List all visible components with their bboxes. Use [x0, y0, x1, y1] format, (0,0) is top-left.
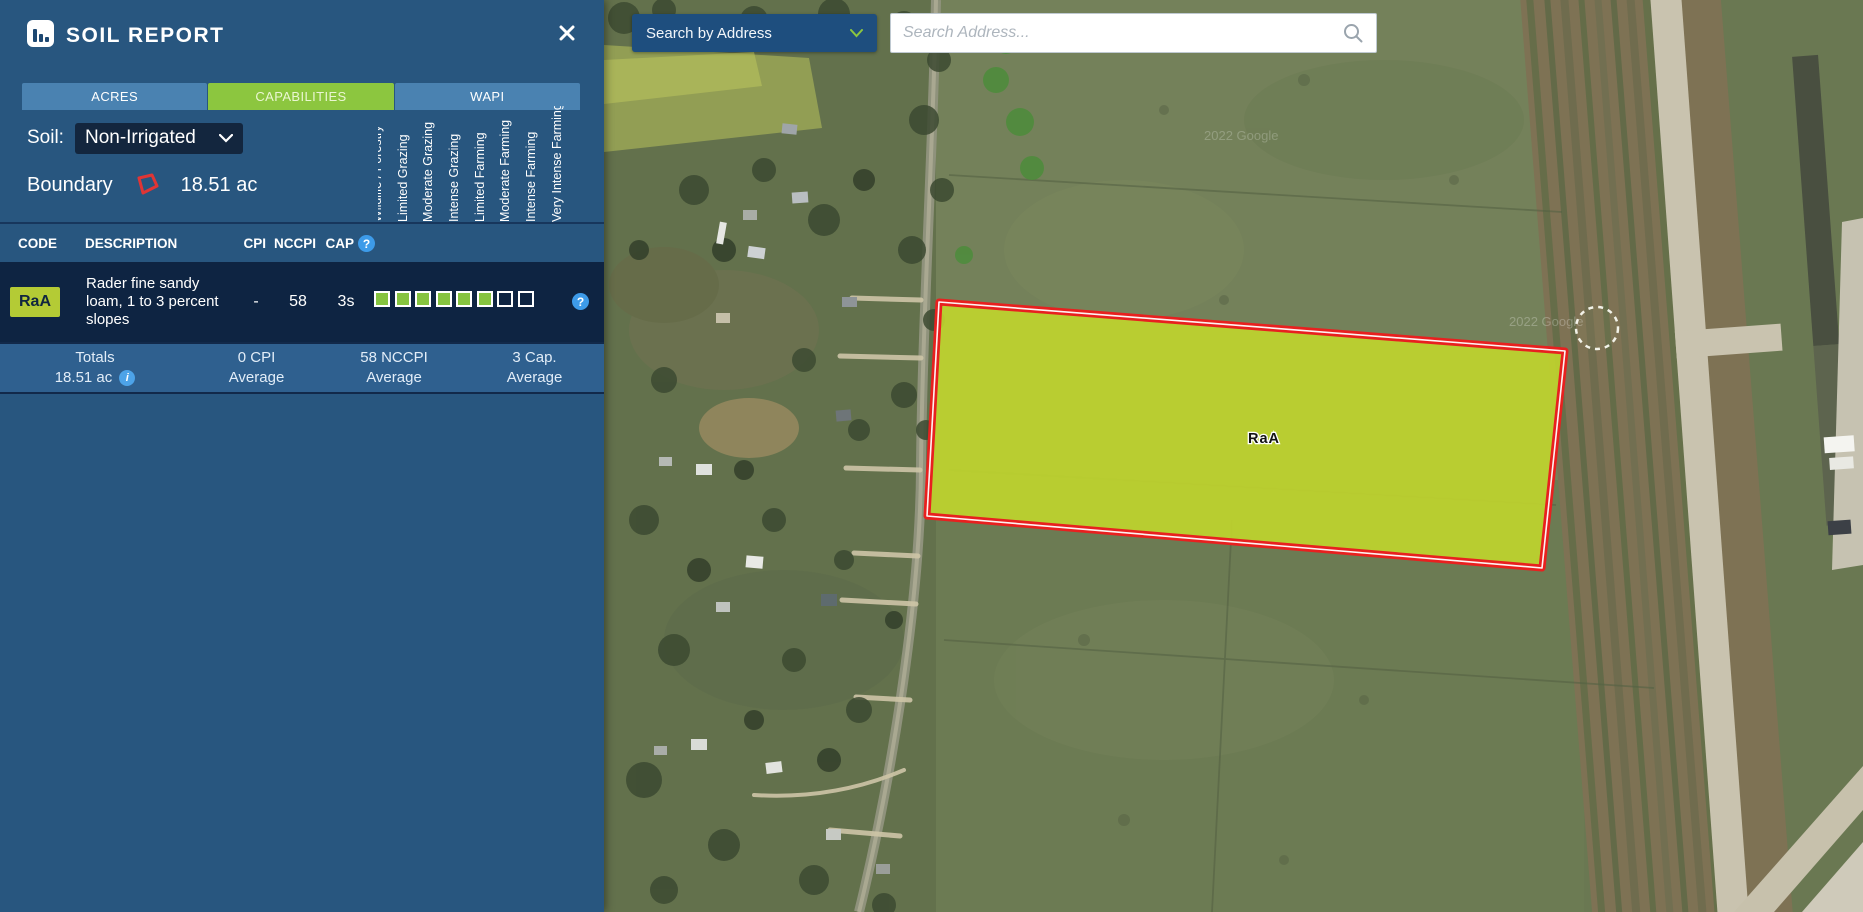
chevron-down-icon — [219, 134, 233, 143]
totals-nccpi-cell: 58 NCCPI Average — [323, 348, 465, 388]
chevron-down-icon — [850, 29, 863, 38]
capability-column-label: Very Intense Farming — [550, 106, 564, 222]
search-type-select[interactable]: Search by Address — [632, 14, 877, 52]
dirt-patch — [699, 398, 799, 458]
soil-type-select[interactable]: Non-Irrigated — [75, 123, 243, 154]
soil-report-app: SOIL REPORT ACRES CAPABILITIES WAPI Soil… — [0, 0, 1863, 912]
capability-filled-square — [395, 291, 411, 307]
search-icon[interactable] — [1342, 22, 1364, 44]
capability-empty-square — [518, 291, 534, 307]
info-icon[interactable]: i — [119, 370, 135, 386]
nccpi-value: 58 — [278, 293, 318, 311]
map-search-bar: Search by Address — [604, 0, 1863, 60]
panel-title: SOIL REPORT — [66, 24, 224, 48]
tab-capabilities[interactable]: CAPABILITIES — [208, 83, 393, 110]
soil-description: Rader fine sandy loam, 1 to 3 percent sl… — [86, 275, 232, 329]
totals-cap-sub: Average — [465, 368, 604, 388]
totals-label: Totals — [0, 348, 190, 368]
capability-filled-square — [477, 291, 493, 307]
cap-value: 3s — [326, 293, 366, 311]
totals-cpi-sub: Average — [190, 368, 323, 388]
capability-filled-square — [436, 291, 452, 307]
boundary-label: Boundary — [27, 174, 113, 197]
soil-type-selected: Non-Irrigated — [85, 127, 219, 149]
header-description: DESCRIPTION — [85, 236, 177, 251]
capability-column-label: Moderate Farming — [498, 120, 512, 222]
search-type-label: Search by Address — [646, 25, 850, 42]
capability-column-headers: Wildlife / Forestry Limited Grazing Mode… — [378, 106, 594, 222]
watermark-text: 2022 Google — [1509, 314, 1583, 329]
soil-report-panel: SOIL REPORT ACRES CAPABILITIES WAPI Soil… — [0, 0, 604, 912]
parcel-code-label: RaA — [1248, 431, 1280, 447]
soil-code-badge: RaA — [10, 287, 60, 317]
watermark-text: 2022 Google — [1204, 128, 1278, 143]
address-search-input[interactable] — [903, 24, 1342, 42]
boundary-acres: 18.51 ac — [181, 174, 258, 197]
row-help-icon[interactable]: ? — [572, 293, 589, 310]
totals-acres-cell: Totals 18.51 ac i — [0, 348, 190, 388]
bar-chart-icon — [27, 20, 54, 47]
header-code: CODE — [18, 236, 57, 251]
capability-column-label: Intense Farming — [524, 132, 538, 222]
totals-bar: Totals 18.51 ac i 0 CPI Average 58 NCCPI… — [0, 342, 604, 394]
cpi-value: - — [236, 293, 276, 311]
capability-column-label: Limited Grazing — [396, 134, 410, 222]
capability-column-label: Limited Farming — [473, 132, 487, 222]
soil-table-header: CODE DESCRIPTION CPI NCCPI CAP ? — [0, 222, 604, 262]
totals-nccpi-sub: Average — [323, 368, 465, 388]
header-nccpi: NCCPI — [270, 236, 316, 251]
cap-help-icon[interactable]: ? — [358, 235, 375, 252]
capability-empty-square — [497, 291, 513, 307]
tab-acres[interactable]: ACRES — [22, 83, 207, 110]
header-cpi: CPI — [228, 236, 266, 251]
totals-cap: 3 Cap. — [465, 348, 604, 368]
capability-filled-square — [456, 291, 472, 307]
totals-cpi-cell: 0 CPI Average — [190, 348, 323, 388]
close-icon[interactable] — [552, 18, 582, 48]
soil-label: Soil: — [27, 127, 64, 149]
capability-squares — [374, 291, 534, 307]
address-search-box — [890, 13, 1377, 53]
table-row[interactable]: RaA Rader fine sandy loam, 1 to 3 percen… — [0, 262, 604, 342]
totals-cap-cell: 3 Cap. Average — [465, 348, 604, 388]
satellite-imagery[interactable]: 2022 Google 2022 Google RaA — [604, 0, 1863, 912]
totals-acres: 18.51 ac — [55, 368, 113, 388]
capability-filled-square — [374, 291, 390, 307]
capability-column-label: Intense Grazing — [447, 134, 461, 222]
totals-cpi: 0 CPI — [190, 348, 323, 368]
totals-nccpi: 58 NCCPI — [323, 348, 465, 368]
capability-column-label: Moderate Grazing — [421, 122, 435, 222]
header-cap: CAP — [322, 236, 354, 251]
boundary-polygon-icon — [135, 173, 161, 197]
map-area[interactable]: 2022 Google 2022 Google RaA Search by Ad… — [604, 0, 1863, 912]
capability-filled-square — [415, 291, 431, 307]
capability-column-label: Wildlife / Forestry — [378, 125, 384, 222]
